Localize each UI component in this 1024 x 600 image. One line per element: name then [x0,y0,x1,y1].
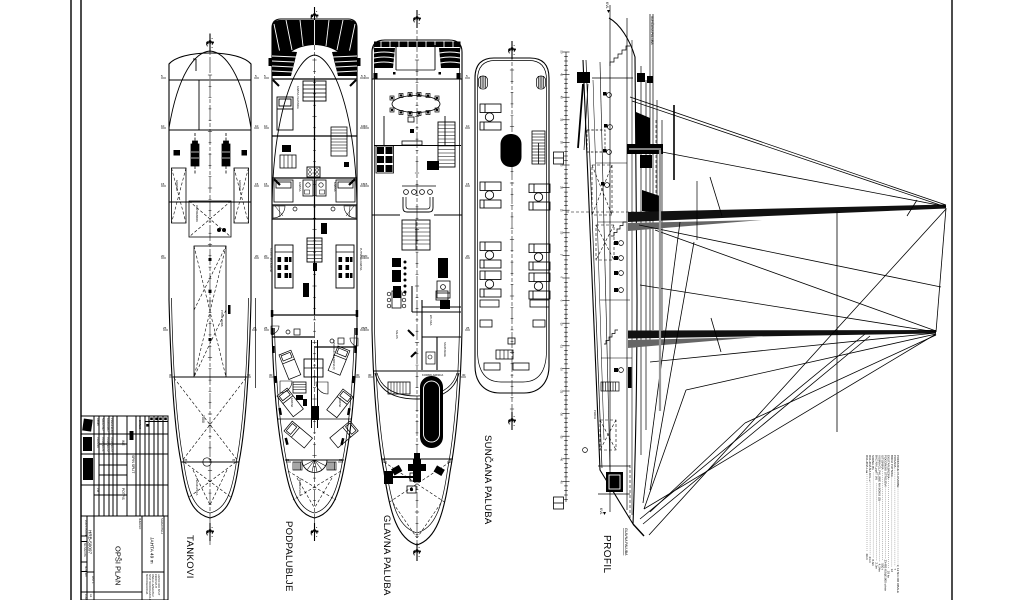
svg-text:-45: -45 [560,480,564,484]
svg-text:KABINA: KABINA [333,182,337,192]
svg-text:30: 30 [368,373,372,377]
svg-text:VODITELJ 1: VODITELJ 1 [101,437,105,452]
svg-text:20: 20 [161,254,165,258]
svg-text:SALON: SALON [395,330,399,339]
svg-text:35: 35 [286,458,290,462]
svg-text:OPŠI PLAN: OPŠI PLAN [114,546,123,586]
svg-text:FORMAT: FORMAT [84,594,88,600]
svg-text:VODITELJ 3: VODITELJ 3 [110,437,114,452]
svg-text:BRODOGRADNJA: BRODOGRADNJA [145,574,148,595]
svg-text:PREGLEDAO: PREGLEDAO [110,418,114,434]
svg-text:-20: -20 [560,367,564,371]
svg-text:PROFIL: PROFIL [601,535,612,574]
svg-text:V.SPREMNIK: V.SPREMNIK [195,205,199,222]
svg-text:15: 15 [264,182,268,186]
svg-text:NACRTAO: NACRTAO [101,418,105,430]
svg-text:35: 35 [382,458,386,462]
svg-text:KABINA: KABINA [338,398,341,408]
svg-text:PODRUCJE PLOVIDBE: PODRUCJE PLOVIDBE [896,455,900,487]
svg-text:15: 15 [364,182,368,186]
svg-text:25: 25 [253,326,257,330]
svg-text:BR-NACRTA: BR-NACRTA [83,543,86,557]
svg-text:IME: IME [121,440,125,446]
svg-text:25: 25 [466,326,470,330]
svg-text:10: 10 [255,124,259,128]
svg-text:SUNČANA PALUBA: SUNČANA PALUBA [482,435,493,525]
svg-text:JAHTA 49 m: JAHTA 49 m [149,537,155,564]
svg-text:10: 10 [264,124,268,128]
svg-text:PRAMCANICA: PRAMCANICA [298,478,302,496]
svg-text:HRB-50097: HRB-50097 [88,530,93,554]
svg-text:25: 25 [264,326,268,330]
svg-text:A1: A1 [89,594,93,598]
svg-text:15: 15 [161,182,165,186]
svg-text:30: 30 [462,373,466,377]
svg-text:VLASNIK: VLASNIK [96,437,100,448]
svg-text:KABINA VLASNIKA: KABINA VLASNIKA [296,86,300,109]
svg-text:RAZRADIO: RAZRADIO [106,418,110,431]
svg-text:ZOP-LTS-001: ZOP-LTS-001 [84,520,88,537]
svg-text:35: 35 [339,458,343,462]
svg-text:35: 35 [448,458,452,462]
svg-text:10: 10 [161,124,165,128]
svg-text:PUTNICKA KABINA: PUTNICKA KABINA [359,248,362,271]
svg-text:-10: -10 [560,322,564,326]
svg-text:-25: -25 [560,390,564,394]
svg-text:30: 30 [269,373,273,377]
svg-text:PM: PM [96,488,100,492]
svg-text:Datum: Datum [96,418,100,426]
svg-text:POTPIS: POTPIS [121,488,125,500]
svg-text:35: 35 [232,458,236,462]
svg-text:25: 25 [364,326,368,330]
svg-text:SPIN SPLIT: SPIN SPLIT [131,455,135,473]
svg-text:PJACA: PJACA [593,410,597,419]
svg-text:-30: -30 [560,412,564,416]
svg-text:GORIVO: GORIVO [175,180,179,192]
svg-text:15: 15 [466,182,470,186]
svg-text:20: 20 [264,254,268,258]
svg-text:PITKA VODA: PITKA VODA [220,310,224,327]
svg-text:GLAVNA PALUBA: GLAVNA PALUBA [381,515,392,596]
svg-text:KVL: KVL [605,2,609,9]
svg-text:SPLIT BRODOGRADILISTE: SPLIT BRODOGRADILISTE [148,574,151,600]
svg-text:SUNČANA PALUBA: SUNČANA PALUBA [650,16,655,46]
svg-text:-35: -35 [560,435,564,439]
svg-text:SANITARIJE: SANITARIJE [443,342,447,357]
svg-text:NARUCITELJ: NARUCITELJ [160,518,164,535]
svg-text:OBALA LAZARETA 2: OBALA LAZARETA 2 [151,574,154,597]
svg-text:MJERILO: MJERILO [138,518,142,529]
svg-text:LIST 1: LIST 1 [91,576,95,584]
svg-text:GLAVNA PALUBA: GLAVNA PALUBA [624,528,628,556]
svg-text:VODITELJ 2: VODITELJ 2 [106,437,110,452]
svg-text:20: 20 [255,254,259,258]
svg-text:21000 SPLIT: 21000 SPLIT [154,574,157,588]
svg-text:20: 20 [364,254,368,258]
svg-text:KVL: KVL [599,508,603,515]
svg-text:3; 12 Nm OD OBALE: 3; 12 Nm OD OBALE [896,565,900,593]
svg-text:30: 30 [169,373,173,377]
svg-text:30: 30 [247,373,251,377]
svg-text:7000: 7000 [201,415,205,423]
svg-text:20: 20 [466,254,470,258]
svg-text:KABINA: KABINA [298,182,302,192]
svg-text:TANKOVI: TANKOVI [184,535,195,579]
svg-text:-15: -15 [560,344,564,348]
svg-text:WC-SKA: WC-SKA [429,315,433,326]
svg-text:30: 30 [356,373,360,377]
svg-text:25: 25 [163,326,167,330]
svg-text:15: 15 [255,182,259,186]
svg-text:ST.PUTNIKA KABINA: ST.PUTNIKA KABINA [269,248,272,273]
svg-text:PRAMCANICA: PRAMCANICA [195,478,199,496]
svg-text:10: 10 [466,124,470,128]
svg-text:KABINA: KABINA [290,398,293,408]
svg-text:10: 10 [364,124,368,128]
svg-text:35: 35 [184,458,188,462]
svg-text:PODPALUBLJE: PODPALUBLJE [283,521,294,592]
svg-text:LAVRO DOO SPLIT: LAVRO DOO SPLIT [157,574,160,596]
svg-text:GORIVO: GORIVO [238,180,242,192]
svg-text:MJ 1:100: MJ 1:100 [84,566,88,577]
svg-text:DATUM: DATUM [138,420,142,429]
svg-text:-40: -40 [560,457,564,461]
